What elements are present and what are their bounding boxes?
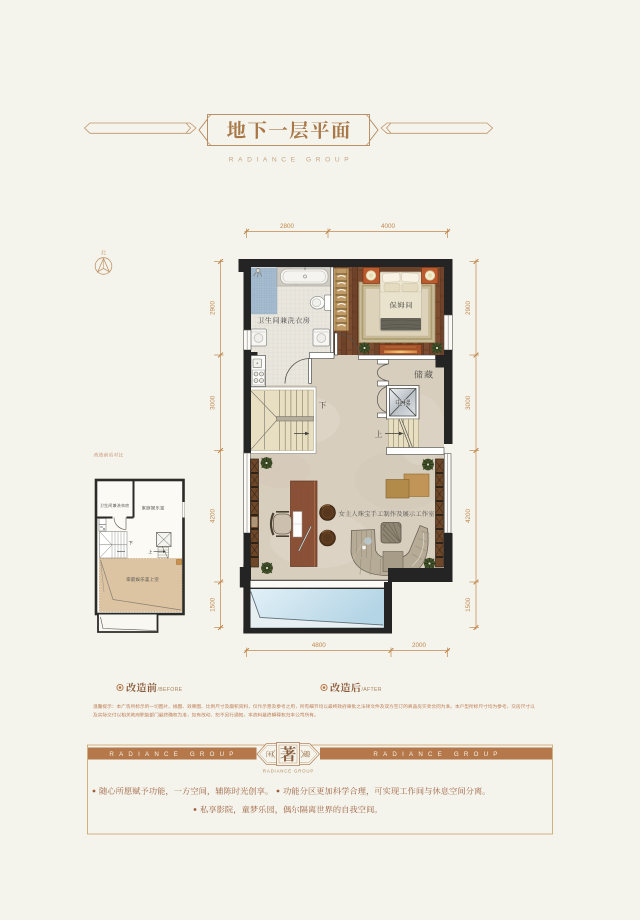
svg-text:1500: 1500 bbox=[465, 597, 472, 612]
svg-text:2800: 2800 bbox=[280, 223, 295, 230]
svg-text:2900: 2900 bbox=[465, 301, 472, 316]
svg-text:RADIANCE GROUP: RADIANCE GROUP bbox=[373, 751, 502, 758]
svg-text:1500: 1500 bbox=[210, 597, 217, 612]
svg-text:4000: 4000 bbox=[381, 223, 396, 230]
svg-text:/BEFORE: /BEFORE bbox=[158, 687, 183, 693]
svg-text:RADIANCE GROUP: RADIANCE GROUP bbox=[263, 769, 314, 774]
svg-text:4200: 4200 bbox=[465, 509, 472, 524]
svg-text:3000: 3000 bbox=[210, 395, 217, 410]
svg-text:2000: 2000 bbox=[412, 642, 427, 649]
svg-text:RADIANCE GROUP: RADIANCE GROUP bbox=[109, 751, 238, 758]
svg-text:RADIANCE GROUP: RADIANCE GROUP bbox=[229, 157, 353, 164]
svg-text:3000: 3000 bbox=[465, 395, 472, 410]
svg-text:/AFTER: /AFTER bbox=[362, 687, 382, 693]
svg-text:4200: 4200 bbox=[210, 509, 217, 524]
svg-text:2900: 2900 bbox=[210, 301, 217, 316]
svg-text:4800: 4800 bbox=[312, 642, 327, 649]
